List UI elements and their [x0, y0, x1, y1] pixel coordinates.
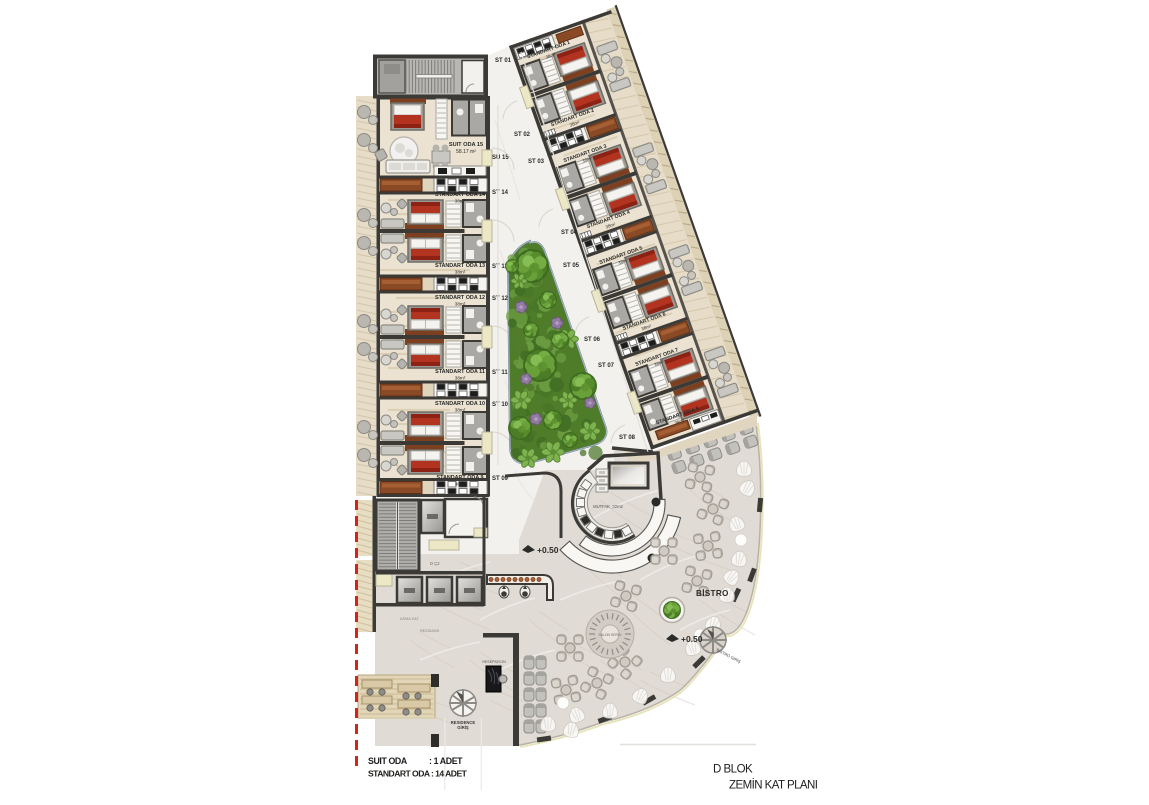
svg-text:STANDART ODA 10: STANDART ODA 10 [435, 401, 485, 407]
svg-text:SUIT ODA: SUIT ODA [368, 756, 408, 766]
svg-text:ST 14: ST 14 [492, 190, 509, 196]
svg-text:STANDART ODA 14: STANDART ODA 14 [435, 192, 485, 198]
svg-text:+0.50: +0.50 [537, 545, 559, 555]
svg-text:+0.50: +0.50 [681, 634, 703, 644]
svg-text:38m²: 38m² [455, 199, 466, 204]
svg-text:ST 11: ST 11 [492, 370, 508, 376]
svg-text:ASMA KAT: ASMA KAT [400, 617, 419, 621]
svg-text:STANDART ODA 13: STANDART ODA 13 [435, 263, 485, 269]
svg-text:SU 15: SU 15 [492, 155, 509, 161]
svg-text:ST 12: ST 12 [492, 296, 509, 302]
svg-text:STANDART ODA 9: STANDART ODA 9 [436, 475, 483, 481]
svg-text:ST 03: ST 03 [528, 159, 545, 165]
svg-text:ST 01: ST 01 [495, 58, 512, 64]
svg-text:38m²: 38m² [455, 302, 466, 307]
svg-text:REZIDANS: REZIDANS [420, 629, 440, 633]
svg-text:: 1 ADET: : 1 ADET [429, 756, 463, 766]
svg-text:ST 02: ST 02 [514, 132, 531, 138]
svg-text:ST 06: ST 06 [584, 337, 601, 343]
svg-text:MUTFAK_32m2: MUTFAK_32m2 [593, 504, 623, 509]
svg-text:ST 05: ST 05 [563, 263, 580, 269]
svg-text:SUIT ODA 15: SUIT ODA 15 [449, 142, 483, 148]
svg-text:38m²: 38m² [455, 376, 466, 381]
svg-text:ST 10: ST 10 [492, 402, 509, 408]
svg-text:ST 07: ST 07 [598, 363, 615, 369]
svg-text:STANDART ODA 12: STANDART ODA 12 [435, 295, 485, 301]
svg-text:38m²: 38m² [455, 482, 466, 487]
svg-text:ST 08: ST 08 [619, 435, 636, 441]
svg-text:D BLOK: D BLOK [713, 764, 753, 776]
svg-text:38m²: 38m² [455, 408, 466, 413]
svg-text:GİRİŞ: GİRİŞ [457, 725, 469, 730]
svg-text:STANDART ODA : 14 ADET: STANDART ODA : 14 ADET [368, 769, 468, 779]
svg-text:BİSTRO: BİSTRO [696, 588, 729, 598]
svg-text:RESEPSIYON: RESEPSIYON [482, 660, 506, 664]
svg-text:STANDART ODA 11: STANDART ODA 11 [435, 369, 485, 375]
svg-text:38m²: 38m² [455, 270, 466, 275]
svg-text:ST 04: ST 04 [561, 230, 578, 236]
svg-text:SALON SERGI: SALON SERGI [599, 633, 622, 637]
svg-text:58.17 m²: 58.17 m² [456, 149, 476, 155]
svg-text:D Ç2: D Ç2 [430, 561, 440, 566]
svg-text:ZEMİN KAT PLANI: ZEMİN KAT PLANI [729, 779, 818, 792]
